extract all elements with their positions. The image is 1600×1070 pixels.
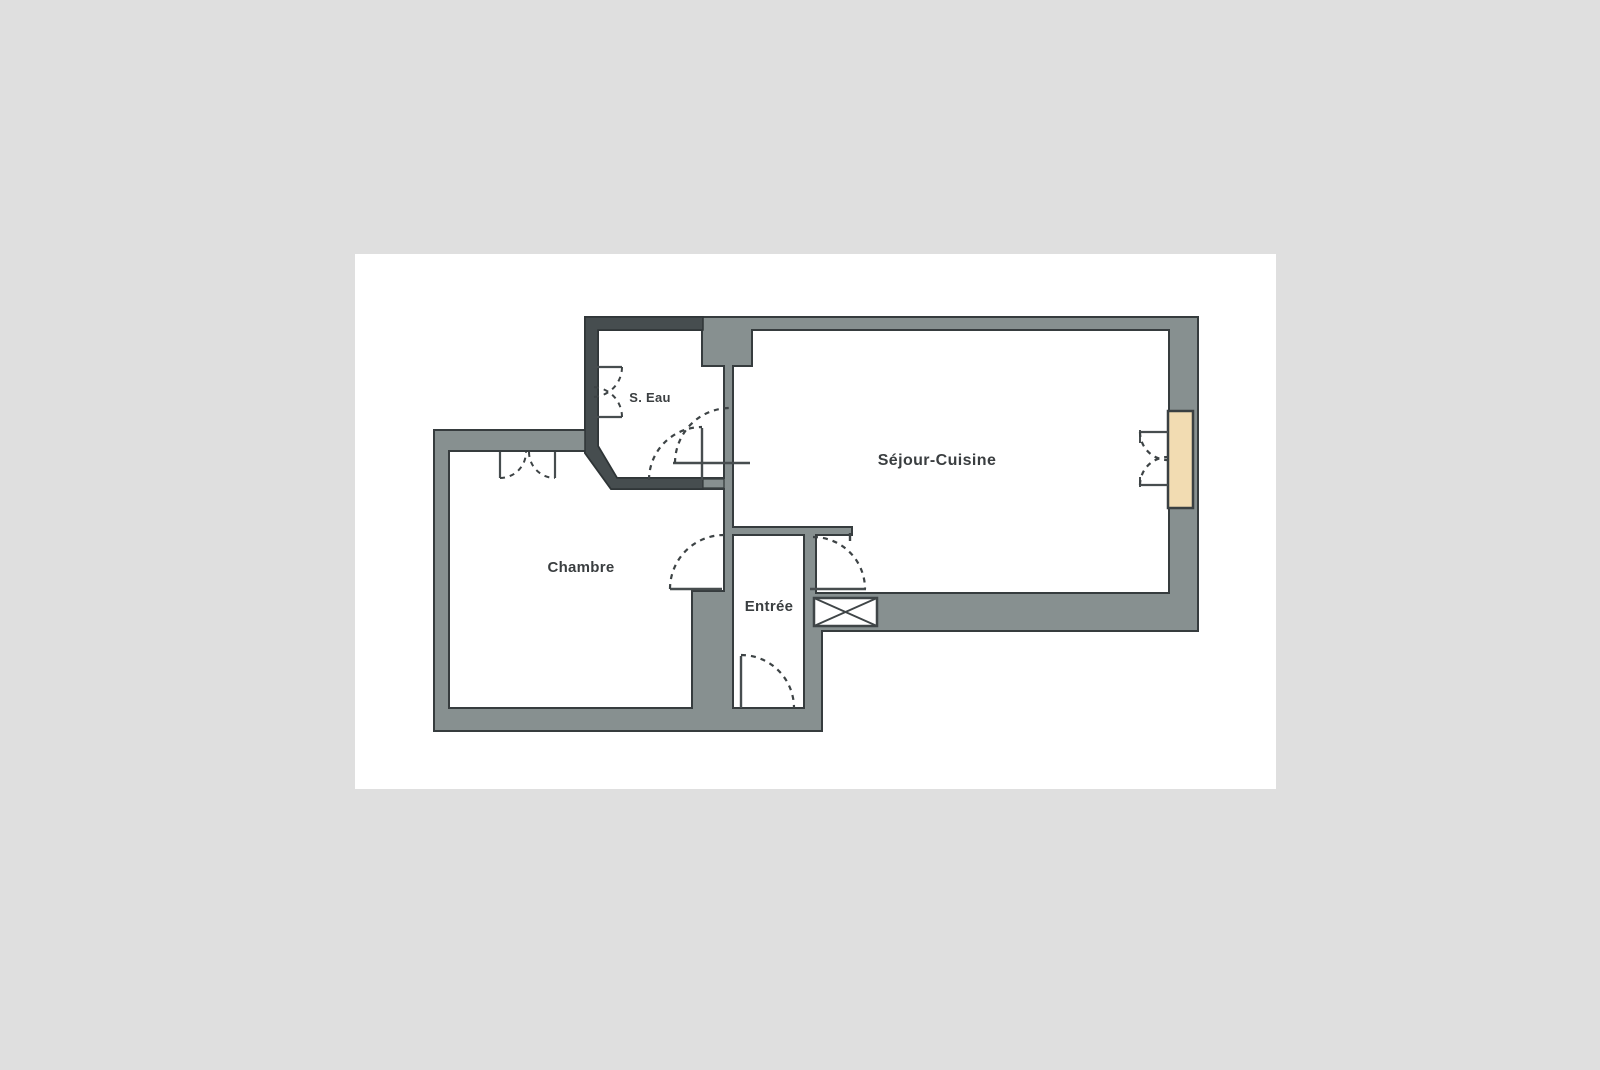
label-sejour-cuisine: Séjour-Cuisine [878,452,997,469]
shaft-crossed-box [814,598,877,626]
label-entree: Entrée [745,598,794,615]
scan-background: S. Eau Séjour-Cuisine Chambre Entrée [0,0,1600,1070]
floorplan-page: S. Eau Séjour-Cuisine Chambre Entrée [355,254,1276,789]
floorplan-drawing: S. Eau Séjour-Cuisine Chambre Entrée [355,254,1276,789]
room-entree-floor [733,535,804,708]
thin-wall-segment [703,479,724,488]
label-chambre: Chambre [547,559,614,576]
label-s-eau: S. Eau [629,390,671,405]
